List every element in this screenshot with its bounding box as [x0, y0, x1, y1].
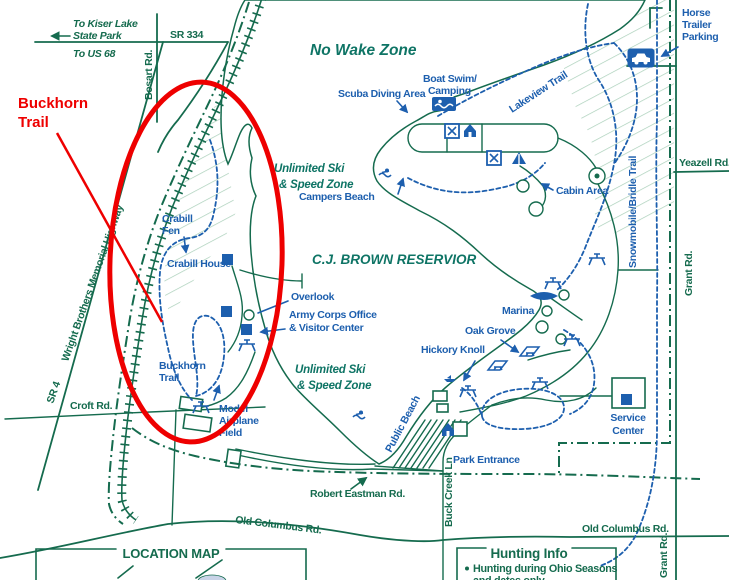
- hickory-knoll-label: Hickory Knoll: [421, 344, 485, 356]
- ski-zone-upper-label-2: & Speed Zone: [279, 179, 354, 191]
- entrance-building: [453, 422, 467, 436]
- buck-creek-label: Buck Creek Ln: [443, 457, 455, 527]
- campers-beach-swimmer-icon: [379, 169, 391, 177]
- park-entrance-label: Park Entrance: [453, 454, 520, 466]
- snowmobile-trail-label: Snowmobile/Bridle Trail: [627, 155, 639, 268]
- ski-zone-lower-label: Unlimited Ski: [295, 364, 366, 376]
- location-map-title: LOCATION MAP: [122, 546, 220, 561]
- to-kiser-label: To Kiser Lake: [73, 18, 138, 30]
- bullet-dot: [465, 567, 469, 571]
- overlook-loop: [244, 310, 254, 320]
- service-center-label: Service: [610, 412, 646, 424]
- buckhorn-trail-path: [193, 316, 224, 396]
- army-corps-label-2: & Visitor Center: [289, 322, 364, 334]
- bosart-rd-label: Bosart Rd.: [143, 50, 155, 100]
- boat-swim-label-2: Camping: [428, 85, 471, 97]
- restroom-icon: [487, 151, 501, 165]
- no-wake-zone-label: No Wake Zone: [310, 42, 417, 59]
- overlook-label: Overlook: [291, 291, 335, 303]
- buckhorn-trail-map-label: Buckhorn: [159, 360, 206, 372]
- buckhorn-annotation-label-2: Trail: [18, 114, 49, 131]
- horse-trailer-label: Horse: [682, 7, 711, 19]
- army-corps-label: Army Corps Office: [289, 309, 377, 321]
- footer: LOCATION MAP Hunting Info Hunting during…: [36, 546, 618, 580]
- horse-trailer-label-3: Parking: [682, 31, 718, 43]
- location-map-lake-thumb: [198, 575, 226, 580]
- office-building-icon: [221, 306, 232, 317]
- hunting-info-line2: and dates only: [473, 575, 545, 580]
- service-center-label-2: Center: [612, 425, 644, 437]
- reservoir-label: C.J. BROWN RESERVIOR: [312, 252, 477, 267]
- robert-eastman-label: Robert Eastman Rd.: [310, 488, 405, 500]
- crabill-fen-label: Crabill: [162, 213, 193, 225]
- scuba-label: Scuba Diving Area: [338, 88, 426, 100]
- park-map: To Kiser Lake State Park To US 68 SR 334…: [0, 0, 729, 580]
- map-canvas: To Kiser Lake State Park To US 68 SR 334…: [0, 0, 729, 580]
- hunting-info-title: Hunting Info: [490, 546, 567, 561]
- camp-office-icon: [464, 124, 476, 137]
- boat-swim-icon: [432, 97, 456, 111]
- ski-zone-lower-label-2: & Speed Zone: [297, 380, 372, 392]
- restroom-icon: [445, 124, 459, 138]
- service-center-icon: [621, 394, 632, 405]
- grant-rd-label-lower: Grant Rd.: [658, 532, 670, 578]
- boat-swim-label: Boat Swim/: [423, 73, 477, 85]
- yeazell-rd-label: Yeazell Rd.: [679, 157, 729, 169]
- old-columbus-label-left: Old Columbus Rd.: [235, 514, 323, 537]
- sr334-label: SR 334: [170, 29, 204, 41]
- buckhorn-annotation-label: Buckhorn: [18, 95, 88, 112]
- visitor-center-icon: [241, 324, 252, 335]
- old-columbus-label-right: Old Columbus Rd.: [582, 523, 669, 535]
- ski-zone-upper-label: Unlimited Ski: [274, 163, 345, 175]
- hunting-info-line1: Hunting during Ohio Seasons: [473, 563, 618, 575]
- sr4-label: SR 4: [45, 380, 64, 405]
- crabill-house-label: Crabill House: [167, 258, 231, 270]
- marina-label: Marina: [502, 305, 535, 317]
- to-kiser-label-2: State Park: [73, 30, 123, 42]
- horse-trailer-label-2: Trailer: [682, 19, 712, 31]
- tent-icon: [512, 152, 526, 164]
- campers-beach-label: Campers Beach: [299, 191, 374, 203]
- croft-rd-label: Croft Rd.: [70, 400, 113, 412]
- oak-grove-label: Oak Grove: [465, 325, 516, 337]
- to-us68-label: To US 68: [73, 48, 116, 60]
- shelter-icon: [520, 347, 539, 356]
- grant-rd-label-upper: Grant Rd.: [683, 250, 695, 296]
- cabin-area-label: Cabin Area: [556, 185, 609, 197]
- parking-car-icon: [628, 49, 655, 68]
- buckhorn-trail-map-label-2: Trail: [159, 372, 179, 384]
- bathhouse: [433, 391, 447, 401]
- crabill-fen-label-2: Fen: [162, 225, 180, 237]
- shelter-icon: [488, 361, 507, 370]
